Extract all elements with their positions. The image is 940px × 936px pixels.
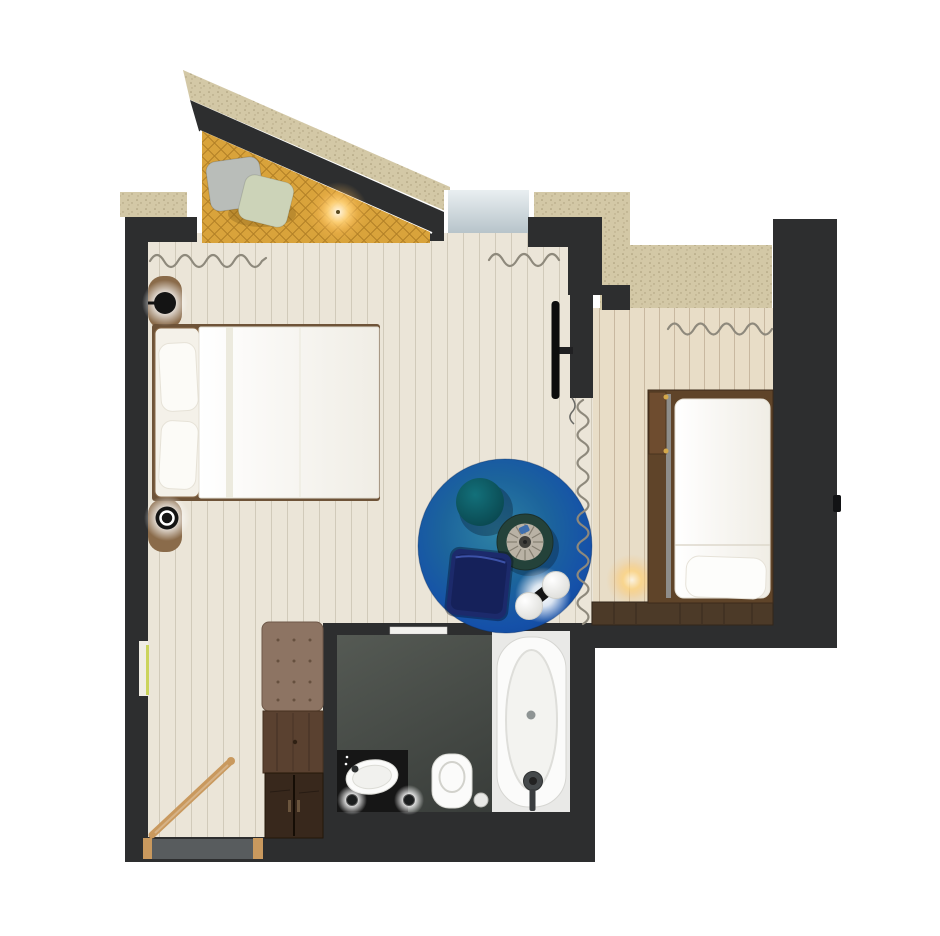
bed-rail: [666, 394, 671, 598]
window-glass: [447, 190, 530, 233]
tv-screen: [552, 301, 560, 399]
bathroom-door: [390, 627, 447, 634]
mat-trim-left: [143, 838, 152, 859]
hinge: [664, 449, 669, 454]
hinge: [664, 395, 669, 400]
basin-faucet: [352, 766, 359, 773]
foot-bench: [592, 602, 773, 625]
wall-light-strip: [146, 645, 149, 695]
wall-partition-tooth: [602, 285, 630, 310]
bathtub-drain: [527, 711, 536, 720]
tv-mount: [559, 347, 573, 354]
wall-left: [125, 217, 148, 862]
wall-sconce-bottom: [156, 507, 179, 530]
bay-ceiling-light: [336, 210, 340, 214]
dresser-knot: [293, 740, 297, 744]
bed-pillow: [158, 420, 199, 490]
wall-partition-mid: [568, 247, 602, 295]
bathtub-basin: [506, 650, 557, 790]
bathtub-faucet-stem: [530, 789, 536, 811]
wall-top-left: [125, 217, 197, 242]
wall-right: [773, 219, 837, 648]
exterior-wall-top-left: [120, 192, 187, 217]
window-frame-left: [444, 190, 448, 233]
floor-plan-canvas: [0, 0, 940, 936]
mat-trim-right: [253, 838, 263, 859]
single-bed-pillow: [685, 556, 766, 600]
bathtub-faucet-center: [529, 777, 537, 785]
wardrobe-handle: [297, 800, 300, 812]
exterior-wall-second-bedroom: [630, 245, 772, 308]
railing-post: [227, 757, 235, 765]
storage-column: [262, 622, 323, 838]
navy-square-pouf: [444, 546, 515, 622]
spotlight: [347, 795, 358, 806]
duvet-fold: [226, 327, 233, 498]
wardrobe-handle: [288, 800, 291, 812]
wall-partition-top: [528, 217, 602, 247]
basin-sparkle: [346, 756, 349, 759]
bay-window-nook: [183, 70, 450, 243]
wall-sconce-top: [154, 292, 176, 314]
wall-second-bedroom-bottom: [560, 623, 837, 648]
door-handle: [833, 495, 841, 512]
bathroom: [337, 627, 570, 815]
basin-sparkle: [345, 763, 348, 766]
doormat: [152, 839, 253, 859]
tufted-ottoman: [262, 622, 323, 711]
window: [444, 190, 534, 233]
floor-plan: [0, 0, 940, 936]
fold-panel: [649, 392, 666, 454]
ball-lamp: [516, 593, 543, 620]
chair-button: [523, 540, 527, 544]
ball-lamp: [543, 572, 570, 599]
wall-tv-partition: [570, 295, 593, 398]
lounge-area: [418, 459, 592, 633]
spotlight: [404, 795, 415, 806]
bed-pillow: [158, 342, 199, 412]
bath-accessory: [474, 793, 488, 807]
teal-round-pouf: [456, 478, 504, 526]
exterior-wall-top-mid: [528, 192, 630, 217]
